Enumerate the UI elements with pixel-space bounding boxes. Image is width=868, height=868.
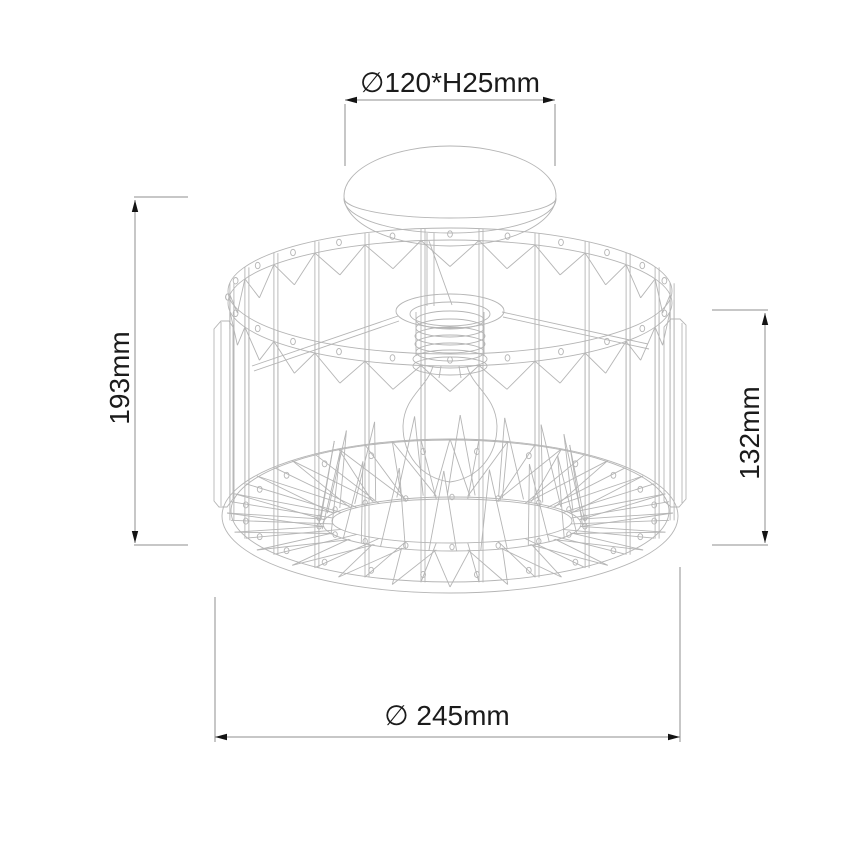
drawing-page: ∅120*H25mm 193mm 132mm ∅ 245mm <box>0 0 868 868</box>
dim-label-canopy: ∅120*H25mm <box>360 67 540 98</box>
dim-label-shade-diameter: ∅ 245mm <box>384 700 510 731</box>
dim-label-total-height: 193mm <box>104 331 135 424</box>
lamp-wireframe <box>214 146 686 593</box>
lamp-technical-drawing: ∅120*H25mm 193mm 132mm ∅ 245mm <box>0 0 868 868</box>
dimension-annotations <box>132 97 768 742</box>
dim-label-shade-height: 132mm <box>734 386 765 479</box>
